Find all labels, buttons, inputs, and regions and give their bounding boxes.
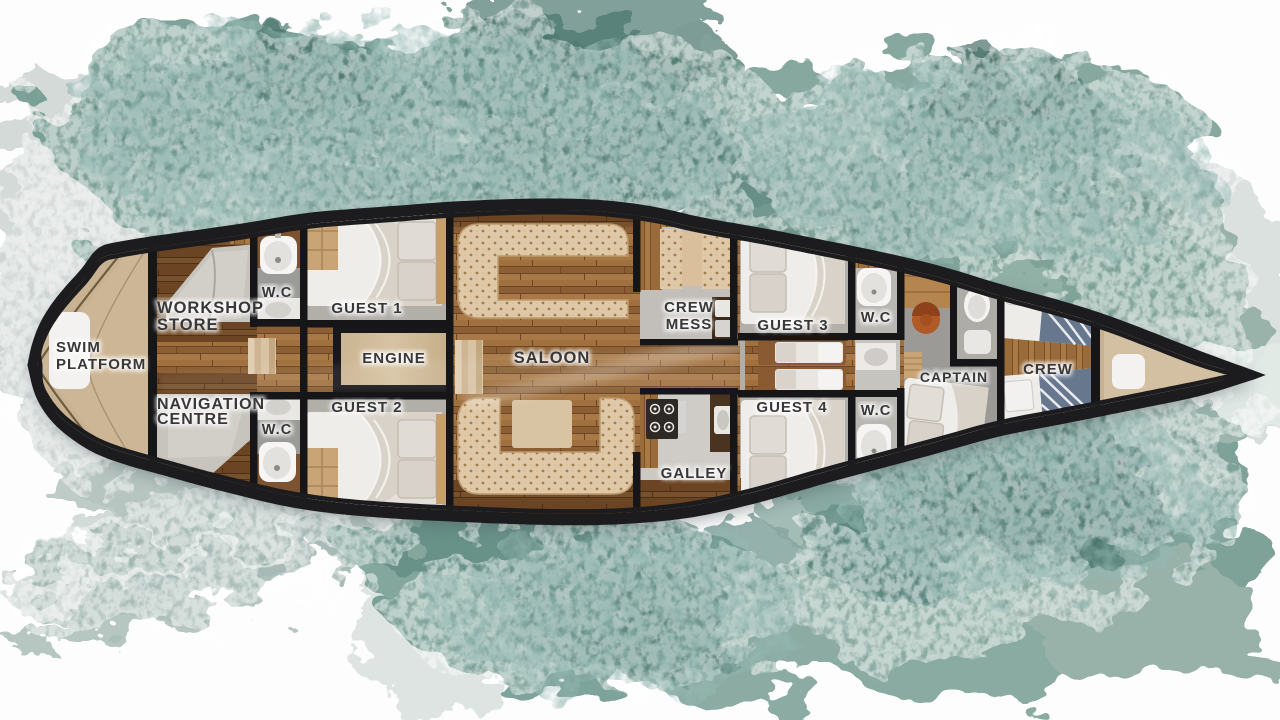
svg-text:WORKSHOP: WORKSHOP [157, 299, 264, 317]
svg-text:W.C: W.C [262, 285, 292, 301]
svg-text:CREW: CREW [1023, 361, 1073, 378]
svg-text:CENTRE: CENTRE [157, 411, 229, 428]
svg-text:GUEST 3: GUEST 3 [757, 317, 828, 334]
svg-text:W.C: W.C [262, 422, 292, 438]
svg-text:W.C: W.C [861, 310, 891, 326]
svg-text:GUEST 4: GUEST 4 [756, 399, 827, 416]
svg-text:STORE: STORE [157, 316, 219, 334]
svg-text:ENGINE: ENGINE [362, 350, 426, 367]
svg-text:CAPTAIN: CAPTAIN [920, 369, 988, 385]
svg-text:GUEST 2: GUEST 2 [331, 399, 402, 416]
svg-text:PLATFORM: PLATFORM [56, 356, 146, 373]
svg-text:SWIM: SWIM [56, 339, 101, 356]
svg-text:SALOON: SALOON [514, 349, 591, 367]
svg-text:GUEST 1: GUEST 1 [331, 300, 402, 317]
svg-text:CREW: CREW [664, 299, 714, 316]
svg-text:MESS: MESS [666, 316, 713, 333]
svg-text:W.C: W.C [861, 403, 891, 419]
svg-text:GALLEY: GALLEY [661, 465, 728, 482]
